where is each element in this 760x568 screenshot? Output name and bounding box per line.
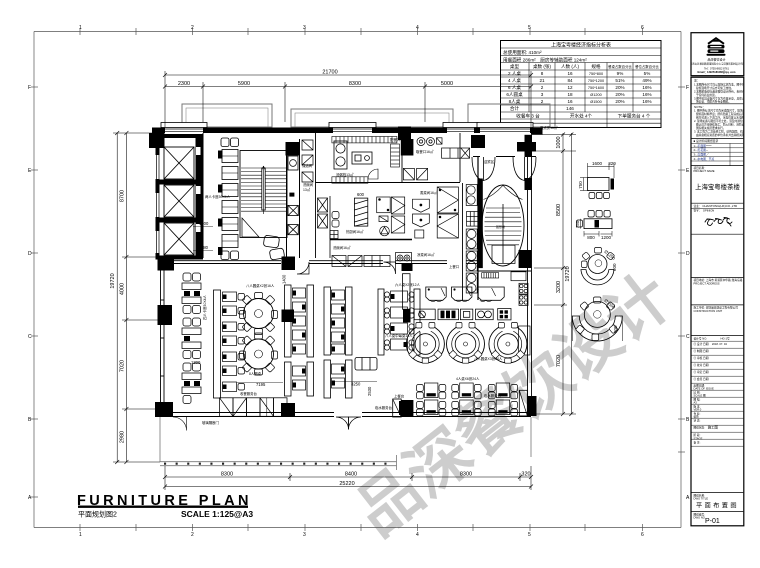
svg-text:600: 600 [357,192,365,197]
svg-text:收餐服务台: 收餐服务台 [240,391,258,396]
svg-text:1000: 1000 [556,136,562,148]
svg-text:2. 现场如遇与图纸不符之处，须及时通知设计师，经: 2. 现场如遇与图纸不符之处，须及时通知设计师，经 [694,119,756,123]
svg-text:2 人桌: 2 人桌 [508,70,521,77]
svg-text:E: E [28,168,32,174]
svg-text:上海宝粤楼茶楼: 上海宝粤楼茶楼 [695,182,740,191]
svg-text:总使用面积: 410m²: 总使用面积: 410m² [503,49,542,56]
svg-text:A3: A3 [694,401,698,405]
svg-text:国家相关规范要求执行。: 国家相关规范要求执行。 [696,126,726,130]
svg-text:5900: 5900 [238,81,250,87]
svg-text:P-01: P-01 [705,518,720,525]
svg-text:3250: 3250 [351,382,361,387]
svg-text:2: 2 [191,532,194,538]
svg-text:7020: 7020 [556,355,562,367]
svg-text:320: 320 [608,161,616,166]
svg-text:20%: 20% [615,85,624,90]
svg-text:下单服务台 4 个: 下单服务台 4 个 [618,112,651,119]
svg-text:装饰: 装饰 [694,415,700,419]
svg-text:设计号 NO. HG-1号: 设计号 NO. HG-1号 [694,336,730,340]
svg-text:6: 6 [641,532,644,538]
svg-text:NOTE：: NOTE： [694,105,705,109]
svg-text:3: 3 [303,25,306,31]
svg-text:A: A [686,495,690,501]
svg-text:2300: 2300 [178,81,190,87]
svg-text:5000: 5000 [441,81,453,87]
svg-text:合计: 合计 [510,105,520,112]
svg-text:21: 21 [539,78,545,83]
svg-text:复核现场尺寸后方可施工放线。: 复核现场尺寸后方可施工放线。 [696,86,734,90]
svg-text:蒸菜间16㎡: 蒸菜间16㎡ [420,190,438,195]
svg-text:VER.0: VER.0 [694,408,702,412]
svg-text:六人桌X2张12人: 六人桌X2张12人 [395,282,420,287]
svg-text:C: C [28,334,32,340]
svg-text:8300: 8300 [460,472,472,478]
svg-text:1500: 1500 [199,221,209,226]
svg-text:D: D [686,251,690,257]
svg-text:规格: 规格 [591,63,601,70]
svg-text:16: 16 [567,99,573,104]
svg-text:取餐口16㎡: 取餐口16㎡ [416,149,434,154]
svg-text:DWG NO.: DWG NO. [694,516,706,520]
svg-text:2: 2 [191,25,194,31]
svg-text:洗碗间16㎡: 洗碗间16㎡ [333,245,351,250]
svg-text:■ 设计阶段图纸目录: ■ 设计阶段图纸目录 [694,139,719,143]
svg-text:16: 16 [567,71,573,76]
svg-text:2.本图纸版权归品深餐饮设计所有，未经许可不得复制、转让，用: 2.本图纸版权归品深餐饮设计所有，未经许可不得复制、转让，用 [694,90,760,94]
svg-text:F: F [686,85,689,91]
svg-text:750*800: 750*800 [589,72,603,76]
svg-text:◎ 会签 日期:: ◎ 会签 日期: [694,377,710,381]
svg-text:2: 2 [541,99,544,104]
svg-text:51%: 51% [615,78,624,83]
svg-text:20%: 20% [615,99,624,104]
svg-text:600: 600 [612,263,617,271]
svg-text:由具备相应资质的单位承担并出具相关图纸。: 由具备相应资质的单位承担并出具相关图纸。 [696,133,750,137]
svg-text:800: 800 [587,235,595,240]
svg-text:西点房16㎡: 西点房16㎡ [540,125,558,130]
svg-text:20%: 20% [615,92,624,97]
svg-text:弧形梯: 弧形梯 [496,224,505,229]
svg-text:桌型: 桌型 [510,63,520,70]
svg-text:1600: 1600 [592,161,603,166]
svg-text:C: C [686,334,690,340]
svg-text:1.□平面图━━: 1.□平面图━━ [694,144,712,148]
svg-text:A: A [28,495,32,501]
svg-text:四人卡座30X4人: 四人卡座30X4人 [202,295,207,320]
svg-text:餐桌占数百分比: 餐桌占数百分比 [608,64,632,69]
svg-text:◎ 设计 日期: 2018. 07. 04: ◎ 设计 日期: 2018. 07. 04 [694,342,728,346]
svg-text:施工单位: 深圳品深建设工程有限公司: 施工单位: 深圳品深建设工程有限公司 [694,306,739,310]
svg-text:签字： OPINION: 签字： OPINION [694,209,715,213]
svg-text:4: 4 [416,532,419,538]
svg-text:1400: 1400 [282,274,287,284]
svg-text:Ø1500: Ø1500 [590,100,601,104]
svg-text:1: 1 [79,25,82,31]
svg-text:750*1600: 750*1600 [588,86,604,90]
svg-text:八人圆桌X3张24人: 八人圆桌X3张24人 [474,356,503,361]
svg-text:1300: 1300 [191,360,201,365]
svg-text:桌数 (张): 桌数 (张) [533,63,552,70]
svg-text:750: 750 [578,181,583,189]
svg-text:1: 1 [79,532,82,538]
svg-text:750: 750 [575,220,580,228]
svg-text:8人圆桌: 8人圆桌 [249,371,262,376]
svg-text:CONSTRUCTION UNIT: CONSTRUCTION UNIT [694,309,723,313]
svg-text:1.本图所有尺寸均以现场实测为准，图中尺寸仅作参考，施工前须: 1.本图所有尺寸均以现场实测为准，图中尺寸仅作参考，施工前须 [694,83,760,87]
svg-text:上餐台: 上餐台 [394,394,405,399]
svg-text:配餐口16㎡: 配餐口16㎡ [390,137,408,142]
svg-text:汤粥档13㎡: 汤粥档13㎡ [336,172,354,177]
svg-text:留饰面材料厚度；所有隐蔽工程完成后须经验收合: 留饰面材料厚度；所有隐蔽工程完成后须经验收合 [696,112,755,116]
svg-text:5: 5 [528,25,531,31]
svg-text:注：: 注： [694,78,700,83]
svg-text:八人桌中每桌10人: 八人桌中每桌10人 [385,333,413,338]
svg-text:19720: 19720 [110,273,116,288]
svg-text:◎ 审核 日期:: ◎ 审核 日期: [694,356,710,360]
svg-text:4: 4 [416,25,419,31]
svg-text:3: 3 [303,532,306,538]
svg-text:6: 6 [641,25,644,31]
svg-text:Tel：0755-8652 8761: Tel：0755-8652 8761 [704,67,729,71]
svg-text:2: 2 [541,85,544,90]
svg-text:25220: 25220 [339,481,354,487]
svg-text:平面规划图2: 平面规划图2 [78,510,117,519]
svg-text:146: 146 [566,106,574,111]
svg-text:于任何商业用途。: 于任何商业用途。 [696,93,718,97]
svg-text:6人圆桌: 6人圆桌 [506,91,523,98]
svg-text:750*1200: 750*1200 [588,79,604,83]
svg-text:◎ 制图 日期:: ◎ 制图 日期: [694,349,710,353]
svg-text:8300: 8300 [349,81,361,87]
svg-text:平面布置图: 平面布置图 [696,502,739,510]
svg-text:◎ 校对 日期:: ◎ 校对 日期: [694,363,710,367]
svg-text:保洁间: 保洁间 [302,163,313,168]
svg-text:4.□水电图．节点: 4.□水电图．节点 [694,157,715,161]
svg-text:两人卡座30X4人: 两人卡座30X4人 [205,194,230,199]
svg-text:B: B [28,417,32,423]
svg-text:玻璃隔断门: 玻璃隔断门 [202,420,220,425]
svg-text:深圳市南山区桃园路田厦国际中心宝深餐饮策划设计有限公司: 深圳市南山区桃园路田厦国际中心宝深餐饮策划设计有限公司 [685,62,750,66]
svg-text:DWG TITLE: DWG TITLE [694,497,709,501]
svg-text:8400: 8400 [345,472,357,478]
svg-text:5%: 5% [644,71,651,76]
svg-text:上餐口: 上餐口 [449,264,459,269]
svg-text:2980: 2980 [120,431,126,443]
svg-text:16%: 16% [642,99,651,104]
svg-text:9%: 9% [617,71,624,76]
svg-text:320: 320 [521,472,530,478]
svg-text:DATE OF ISSUE: DATE OF ISSUE [694,387,714,391]
svg-text:临水服务台: 临水服务台 [375,405,393,410]
svg-text:Ø1200: Ø1200 [590,93,601,97]
svg-text:热厨间16㎡: 热厨间16㎡ [346,229,364,234]
svg-text:SCALE 1:125@A3: SCALE 1:125@A3 [181,509,253,519]
svg-text:4000: 4000 [120,283,126,295]
svg-text:品深餐饮设计: 品深餐饮设计 [344,261,685,549]
svg-text:8300: 8300 [221,472,233,478]
svg-text:3200: 3200 [556,281,562,293]
svg-text:PROJECT ADDRESS: PROJECT ADDRESS [694,281,720,285]
svg-text:21700: 21700 [322,70,337,76]
svg-text:1180: 1180 [199,245,209,250]
svg-text:人数 (人): 人数 (人) [561,63,580,70]
svg-text:3: 3 [541,92,544,97]
svg-text:洗碗间: 洗碗间 [303,182,314,187]
svg-text:餐位占数百分比: 餐位占数百分比 [635,64,659,69]
svg-text:B: B [686,417,690,423]
svg-text:4 人桌: 4 人桌 [508,77,521,84]
svg-text:备 注:: 备 注: [694,441,701,445]
svg-text:84: 84 [567,78,573,83]
svg-text:项目地址: 上海市 黄浦区中华路·淮海东路: 项目地址: 上海市 黄浦区中华路·淮海东路 [694,278,743,282]
svg-text:8700: 8700 [120,190,126,202]
svg-text:7020: 7020 [120,360,126,372]
svg-text:2530: 2530 [367,386,372,396]
svg-text:12: 12 [567,85,573,90]
svg-text:5: 5 [528,532,531,538]
svg-text:开水处 4个: 开水处 4个 [570,112,593,119]
svg-text:凉菜间16㎡: 凉菜间16㎡ [417,252,435,257]
svg-text:八人圆桌X2张16人: 八人圆桌X2张16人 [246,283,275,288]
svg-text:Email：13925180486＠qq. com: Email：13925180486＠qq. com [698,70,737,74]
svg-text:PROJECT NAME: PROJECT NAME [694,169,715,173]
svg-text:收餐车 3 台: 收餐车 3 台 [516,112,540,119]
svg-text:E: E [686,168,690,174]
svg-text:13㎡: 13㎡ [303,187,311,192]
svg-text:8500: 8500 [556,204,562,216]
svg-text:19720: 19720 [565,266,571,281]
svg-text:16%: 16% [642,85,651,90]
svg-text:用餐面积 286m² 厨房等辅助面积 124m²: 用餐面积 286m² 厨房等辅助面积 124m² [503,56,587,63]
svg-text:场安装．须配合各专业图纸。: 场安装．须配合各专业图纸。 [696,100,731,104]
svg-text:迎宾区: 迎宾区 [484,159,495,164]
svg-text:确认后方可继续施工；防火材料、消防设施须符合: 确认后方可继续施工；防火材料、消防设施须符合 [696,123,755,127]
svg-text:状 态:: 状 态: [694,419,701,423]
svg-text:F: F [28,85,31,91]
svg-text:3.□立面图╱: 3.□立面图╱ [694,153,709,157]
svg-text:临水服务台: 临水服务台 [484,393,502,398]
svg-text:49%: 49% [642,78,651,83]
svg-text:1. 图中所标注尺寸均为完成面尺寸，现场放线时须预: 1. 图中所标注尺寸均为完成面尺寸，现场放线时须预 [694,109,756,113]
svg-text:600: 600 [613,325,618,333]
svg-text:7195: 7195 [256,382,266,387]
svg-text:品深餐饮设计: 品深餐饮设计 [707,57,725,62]
svg-text:D: D [28,251,32,257]
svg-text:上海宝粤楼经济指标分析表: 上海宝粤楼经济指标分析表 [551,41,611,48]
svg-text:2.□天花图─: 2.□天花图─ [694,148,708,152]
svg-text:◎ 审定 日期:: ◎ 审定 日期: [694,370,710,374]
svg-text:16%: 16% [642,92,651,97]
svg-text:8: 8 [541,71,544,76]
svg-text:6 人桌: 6 人桌 [508,84,521,91]
svg-text:3. 本工程为二次装修工程，结构加固、机电改造等须: 3. 本工程为二次装修工程，结构加固、机电改造等须 [694,130,756,134]
svg-text:SCALE 图: SCALE 图 [694,394,707,398]
svg-text:18: 18 [567,92,573,97]
svg-text:STAGE: STAGE [694,436,703,440]
svg-text:4人桌X6张24人: 4人桌X6张24人 [456,376,480,381]
svg-text:1200: 1200 [601,235,612,240]
svg-text:业主： CHANTONG(HK)CO.,LTD: 业主： CHANTONG(HK)CO.,LTD [694,204,739,208]
